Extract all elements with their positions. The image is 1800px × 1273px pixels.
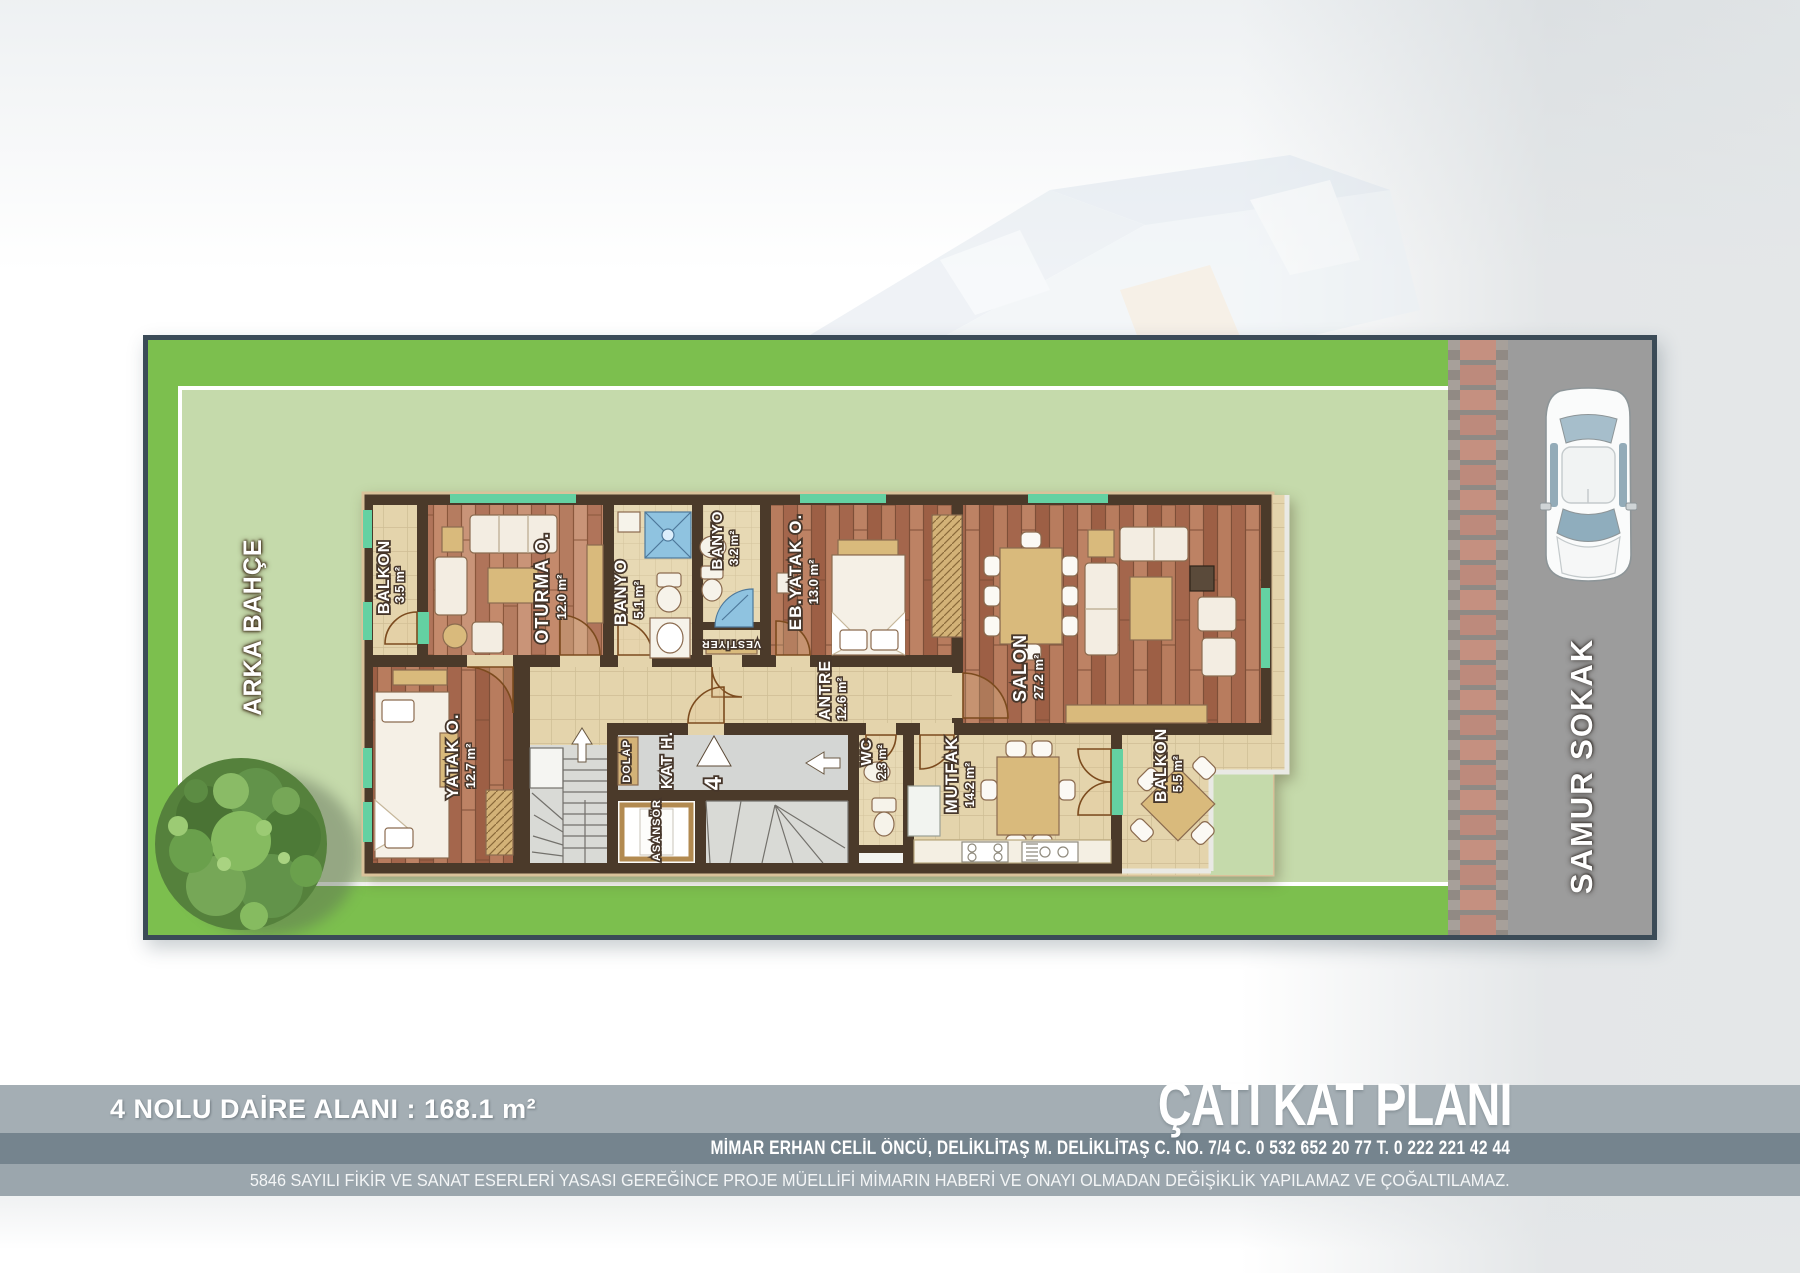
room-label-oturma: OTURMA O. bbox=[532, 532, 552, 643]
room-label-banyo2: BANYO bbox=[709, 510, 726, 569]
plan-title: ÇATI KAT PLANI bbox=[1158, 1076, 1512, 1136]
apartment-area-label: 4 NOLU DAİRE ALANI : 168.1 m² bbox=[110, 1094, 536, 1125]
page: ARKA BAHÇE SAMUR SOKAK bbox=[0, 0, 1800, 1273]
back-garden-text: ARKA BAHÇE bbox=[239, 538, 268, 715]
street-name-label: SAMUR SOKAK bbox=[1562, 606, 1602, 926]
apartment-area-band: 4 NOLU DAİRE ALANI : 168.1 m² bbox=[0, 1085, 1800, 1133]
paver-middle bbox=[1460, 340, 1496, 935]
room-area-oturma: 12.0 m² bbox=[554, 574, 569, 619]
room-label-salon: SALON bbox=[1010, 634, 1030, 702]
ghost-building-render bbox=[690, 60, 1450, 340]
room-area-antre: 12.6 m² bbox=[835, 677, 849, 720]
room-area-balkon2: 5.5 m² bbox=[1171, 756, 1185, 792]
car-top-view-icon bbox=[1540, 385, 1637, 585]
room-label-wc: WC bbox=[858, 739, 875, 766]
legal-band: 5846 SAYILI FİKİR VE SANAT ESERLERİ YASA… bbox=[0, 1164, 1800, 1196]
room-area-mutfak: 14.2 m² bbox=[962, 762, 977, 807]
room-label-dolap: DOLAP bbox=[621, 739, 633, 783]
site-plan-frame: ARKA BAHÇE SAMUR SOKAK bbox=[143, 335, 1657, 940]
room-area-balkon1: 3.5 m² bbox=[393, 567, 407, 603]
background-wash-bottom bbox=[0, 1196, 1800, 1273]
room-label-vestiyer: VESTİYER bbox=[701, 638, 761, 651]
room-label-antre: ANTRE bbox=[817, 660, 834, 720]
room-area-banyo2: 3.2 m² bbox=[727, 531, 741, 566]
room-label-kath: KAT H. bbox=[659, 731, 676, 789]
street-name-text: SAMUR SOKAK bbox=[1564, 638, 1600, 894]
room-label-balkon1: BALKON bbox=[376, 540, 393, 614]
architect-info: MİMAR ERHAN CELİL ÖNCÜ, DELİKLİTAŞ M. DE… bbox=[710, 1138, 1510, 1160]
back-garden-label: ARKA BAHÇE bbox=[233, 477, 273, 777]
room-area-salon: 27.2 m² bbox=[1031, 654, 1046, 699]
room-label-asansor: ASANSÖR bbox=[650, 799, 663, 861]
unit-number: 4 bbox=[700, 776, 727, 790]
architect-band: MİMAR ERHAN CELİL ÖNCÜ, DELİKLİTAŞ M. DE… bbox=[0, 1133, 1800, 1164]
room-label-mutfak: MUTFAK bbox=[942, 737, 961, 814]
room-label-banyo1: BANYO bbox=[611, 559, 630, 625]
paver-edge-right bbox=[1496, 340, 1508, 935]
paver-edge-left bbox=[1448, 340, 1460, 935]
room-area-banyo1: 5.1 m² bbox=[631, 581, 646, 619]
room-label-yatak: YATAK O. bbox=[443, 713, 462, 798]
room-area-yatak: 12.7 m² bbox=[463, 743, 478, 788]
sidewalk-pavers bbox=[1448, 340, 1508, 935]
legal-notice: 5846 SAYILI FİKİR VE SANAT ESERLERİ YASA… bbox=[250, 1170, 1510, 1191]
room-label-balkon2: BALKON bbox=[1153, 728, 1170, 802]
room-area-ebyatak: 13.0 m² bbox=[806, 559, 821, 604]
room-area-wc: 2.3 m² bbox=[875, 745, 889, 780]
floor-plan: 4 bbox=[355, 485, 1305, 885]
room-label-ebyatak: EB.YATAK O. bbox=[786, 514, 805, 630]
